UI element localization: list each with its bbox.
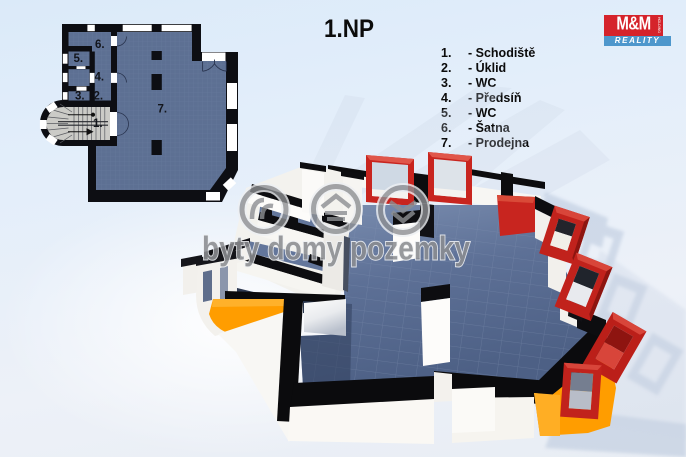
svg-text:byty domy pozemky: byty domy pozemky bbox=[202, 230, 471, 267]
